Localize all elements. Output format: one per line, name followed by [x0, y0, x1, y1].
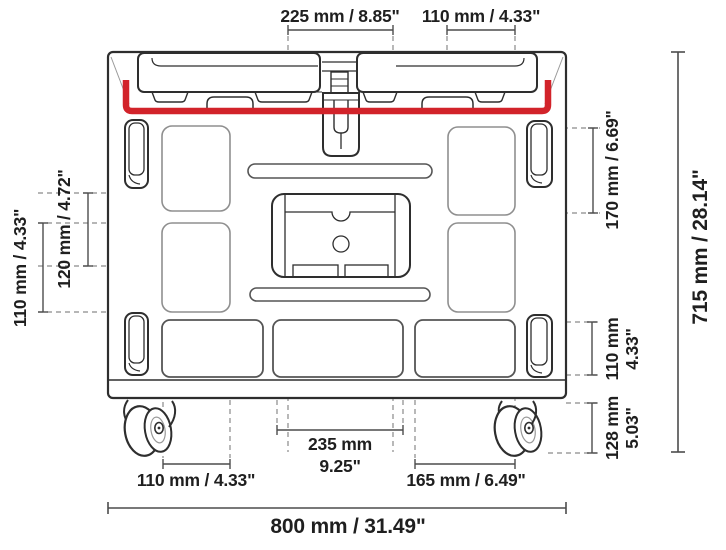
label-top-right-span: 110 mm / 4.33" [422, 6, 540, 26]
label-top-left-span: 225 mm / 8.85" [280, 6, 399, 26]
label-bottom-center-mm: 235 mm [308, 434, 372, 454]
label-bottom-center-in: 9.25" [319, 456, 360, 476]
slot-bottom-right [527, 315, 552, 377]
label-left-outer-height: 110 mm / 4.33" [10, 209, 30, 327]
label-overall-width: 800 mm / 31.49" [270, 515, 425, 538]
label-right-mid-in: 4.33" [622, 328, 642, 369]
label-overall-height: 715 mm / 28.14" [689, 169, 712, 324]
label-right-wheel-mm: 128 mm [602, 396, 622, 460]
label-right-mid-mm: 110 mm [602, 317, 622, 380]
cart-dimension-diagram: 225 mm / 8.85" 110 mm / 4.33" 120 mm / 4… [0, 0, 726, 550]
label-right-top-height: 170 mm / 6.69" [602, 110, 622, 229]
slot-bottom-left [125, 313, 148, 375]
label-right-wheel-in: 5.03" [622, 407, 642, 448]
center-plate [272, 194, 410, 277]
label-bottom-right-span: 165 mm / 6.49" [406, 470, 525, 490]
slot-top-left [125, 120, 148, 188]
caster-left [121, 400, 175, 459]
slot-top-right [527, 121, 552, 187]
label-left-inner-height: 120 mm / 4.72" [54, 169, 74, 288]
dimension-drawing-page: 225 mm / 8.85" 110 mm / 4.33" 120 mm / 4… [0, 0, 726, 550]
caster-right [491, 401, 545, 459]
label-bottom-left-span: 110 mm / 4.33" [137, 470, 255, 490]
